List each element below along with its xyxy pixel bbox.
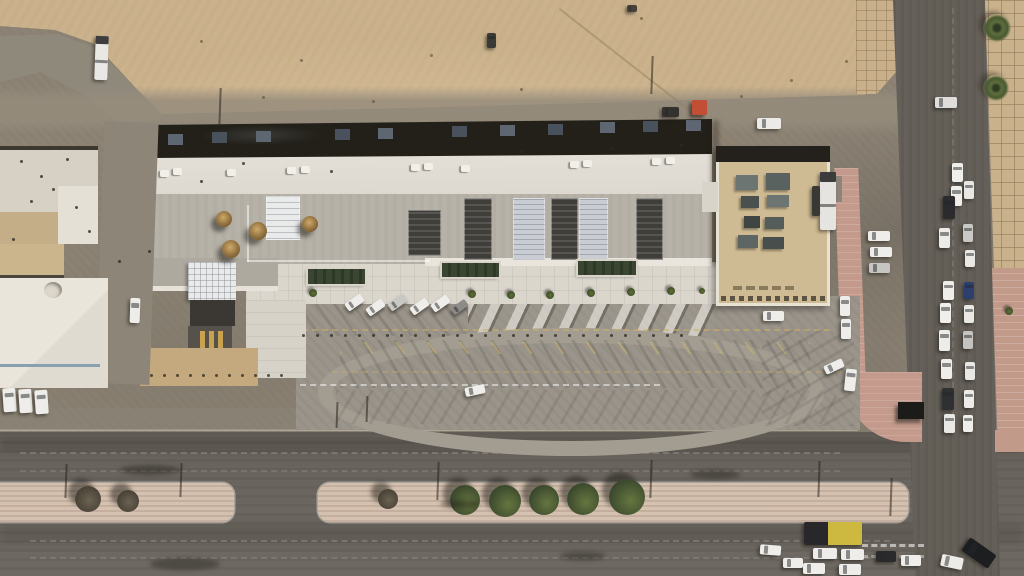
windshield [880,552,884,560]
windshield [36,394,46,399]
windshield [943,392,952,396]
car [409,297,430,315]
windshield [953,167,961,170]
windshield [827,364,833,372]
dumpster [692,100,707,115]
car [387,293,408,311]
windshield [841,300,849,304]
car [963,415,973,432]
car [757,118,781,129]
windshield [965,185,973,188]
truck-segment-line [95,60,108,63]
windshield [843,565,847,573]
car [963,331,973,349]
bus-roof-section [804,522,828,545]
windshield [966,366,974,369]
truck-segment-line [820,204,836,207]
windshield [348,301,355,309]
windshield [944,201,953,205]
car [365,298,386,316]
car [627,5,637,12]
windshield [905,556,909,564]
car [964,181,974,199]
windshield [964,418,972,421]
car [876,551,896,562]
car [901,555,921,566]
windshield [131,303,139,308]
windshield [941,307,949,311]
truck [812,186,820,216]
car [662,107,679,117]
windshield [846,550,850,558]
car [823,358,845,375]
car [869,263,890,273]
aerial-satellite-scene [0,0,1024,576]
van [34,390,49,415]
windshield [434,302,441,310]
car [935,97,957,108]
car [965,250,975,267]
car [487,33,496,48]
windshield [944,285,952,288]
windshield [847,373,856,378]
car [813,548,837,559]
windshield [964,228,972,231]
suv [961,537,996,568]
windshield [842,323,850,327]
car [870,247,892,257]
truck-cab [95,36,108,44]
car [964,305,974,323]
windshield [874,248,878,256]
car [943,281,954,300]
car [964,390,974,408]
windshield [20,393,30,398]
windshield [454,306,460,313]
windshield [665,108,668,116]
car [464,384,485,397]
windshield [488,36,495,39]
windshield [762,119,766,127]
car [939,228,950,248]
windshield [968,542,980,555]
car [841,319,851,339]
car [940,554,964,570]
windshield [468,388,473,395]
windshield [940,232,948,236]
truck-cab [820,172,836,182]
windshield [873,264,877,272]
van [130,298,141,323]
windshield [945,418,953,421]
windshield [942,363,950,367]
car [763,311,784,321]
car [840,296,850,316]
windshield [807,564,811,572]
truck [820,172,836,230]
windshield [964,335,972,338]
windshield [940,334,948,338]
windshield [413,305,420,313]
windshield [767,312,771,320]
suv [942,388,954,410]
car [844,368,857,391]
windshield [4,392,14,397]
windshield [787,559,791,567]
windshield [945,556,951,566]
van [18,389,33,414]
car [783,558,803,568]
windshield [629,6,631,11]
truck [94,36,109,80]
windshield [965,309,973,312]
car [941,359,952,379]
car [939,330,950,351]
windshield [764,546,768,554]
car [964,282,974,299]
car [344,293,365,311]
car [944,414,955,433]
van [2,388,17,413]
car [450,299,469,315]
windshield [939,98,943,106]
car [868,231,890,241]
windshield [391,301,398,309]
car [760,544,782,555]
windshield [965,394,973,397]
windshield [966,253,974,256]
windshield [965,285,973,288]
car [940,303,951,323]
windshield [818,549,822,557]
windshield [369,306,376,314]
car [963,224,973,242]
vehicles-layer [0,0,1024,576]
suv [943,196,955,219]
car [803,563,825,574]
windshield [952,190,960,194]
car [965,362,975,380]
windshield [872,232,876,240]
car [430,294,451,312]
car [952,163,963,182]
car [839,564,861,575]
car [841,549,864,560]
bus [804,522,862,545]
